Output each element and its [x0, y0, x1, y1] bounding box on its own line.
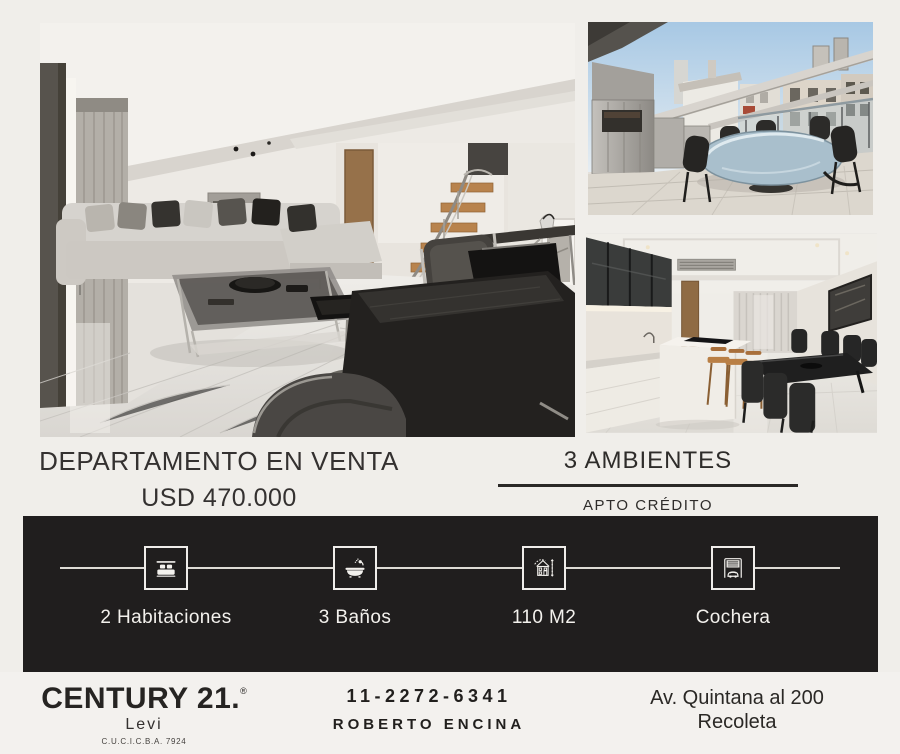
- garage-icon: [720, 555, 746, 581]
- brand-text: CENTURY 21.: [41, 682, 240, 715]
- feature-area: 110 M2: [454, 546, 634, 629]
- listing-title-block: DEPARTAMENTO EN VENTA USD 470.000: [38, 446, 400, 513]
- terrace-photo: [588, 22, 873, 215]
- address-line1: Av. Quintana al 200: [605, 686, 869, 710]
- registered-mark: ®: [240, 686, 247, 696]
- feature-label-bedrooms: 2 Habitaciones: [76, 607, 256, 629]
- glass-table: [697, 131, 845, 193]
- house-measure-icon-box: [522, 546, 566, 590]
- garage-icon-box: [711, 546, 755, 590]
- feature-label-garage: Cochera: [643, 607, 823, 629]
- bathtub-icon-box: [333, 546, 377, 590]
- credit-eligible-label: APTO CRÉDITO: [498, 497, 798, 514]
- kitchen-dining-photo: [586, 233, 877, 433]
- feature-bedrooms: 2 Habitaciones: [76, 546, 256, 629]
- bed-icon-box: [144, 546, 188, 590]
- terrace-scene: [588, 22, 873, 215]
- phone-number: 11-2272-6341: [310, 686, 548, 707]
- address-line2: Recoleta: [605, 710, 869, 734]
- living-room-photo: [40, 23, 575, 437]
- office-name: Levi: [38, 716, 250, 734]
- rooms-block: 3 AMBIENTES APTO CRÉDITO: [498, 447, 798, 514]
- rooms-count: 3 AMBIENTES: [498, 447, 798, 475]
- living-room-scene: [40, 23, 575, 437]
- address-block: Av. Quintana al 200 Recoleta: [605, 686, 869, 735]
- feature-label-bathrooms: 3 Baños: [265, 607, 445, 629]
- agent-name: ROBERTO ENCINA: [310, 716, 548, 733]
- footer: CENTURY 21.® Levi C.U.C.I.C.B.A. 7924 11…: [0, 672, 900, 754]
- bathtub-icon: [342, 555, 368, 581]
- contact-block: 11-2272-6341 ROBERTO ENCINA: [310, 686, 548, 733]
- feature-label-area: 110 M2: [454, 607, 634, 629]
- kitchen-scene: [586, 233, 877, 433]
- brand-block: CENTURY 21.® Levi C.U.C.I.C.B.A. 7924: [38, 682, 250, 746]
- feature-bathrooms: 3 Baños: [265, 546, 445, 629]
- listing-price: USD 470.000: [38, 484, 400, 513]
- listing-title: DEPARTAMENTO EN VENTA: [38, 446, 400, 477]
- feature-garage: Cochera: [643, 546, 823, 629]
- license-number: C.U.C.I.C.B.A. 7924: [38, 737, 250, 746]
- rooms-underline: [498, 484, 798, 487]
- feature-bar: 2 Habitaciones 3 Baños: [23, 516, 878, 672]
- bed-icon: [153, 555, 179, 581]
- house-measure-icon: [531, 555, 557, 581]
- brand-logo: CENTURY 21.®: [38, 682, 250, 716]
